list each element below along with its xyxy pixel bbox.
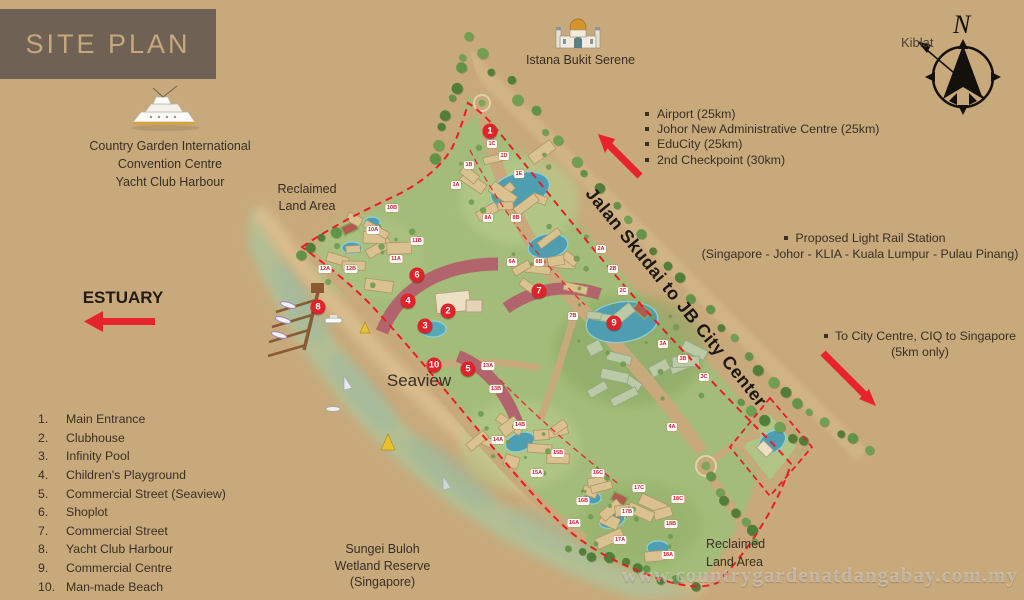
legend-item-label: Clubhouse xyxy=(66,431,125,445)
legend-item-label: Yacht Club Harbour xyxy=(66,542,173,556)
plot-label: 7B xyxy=(568,312,578,320)
bullet-square-icon xyxy=(645,127,649,131)
yacht-icon xyxy=(131,86,199,131)
plot-label: 16C xyxy=(591,469,604,477)
legend-item-number: 3. xyxy=(38,449,66,463)
site-plan-header: SITE PLAN xyxy=(0,9,216,79)
plot-label: 16A xyxy=(567,519,580,527)
plot-label: 1C xyxy=(487,140,497,148)
bullet-square-icon xyxy=(645,112,649,116)
plot-label: 18B xyxy=(664,520,677,528)
plot-label: 12A xyxy=(318,265,331,273)
nearby-item-label: 2nd Checkpoint (30km) xyxy=(657,153,785,167)
compass-north: N xyxy=(952,10,972,39)
site-marker: 2 xyxy=(441,304,456,319)
legend-item-label: Commercial Centre xyxy=(66,561,172,575)
plot-label: 3C xyxy=(699,373,709,381)
site-marker: 4 xyxy=(401,294,416,309)
site-marker: 9 xyxy=(607,316,622,331)
airport-arrow xyxy=(598,134,643,179)
legend-item: 4.Children's Playground xyxy=(38,466,268,485)
plot-label: 10B xyxy=(385,204,398,212)
plot-label: 16B xyxy=(576,497,589,505)
legend-item: 8.Yacht Club Harbour xyxy=(38,540,268,559)
bullet-square-icon xyxy=(784,236,788,240)
plot-label: 14A xyxy=(491,436,504,444)
sungei-buloh-label: Sungei Buloh Wetland Reserve (Singapore) xyxy=(310,541,455,591)
legend-item-number: 9. xyxy=(38,561,66,575)
plot-label: 11A xyxy=(390,255,403,263)
plot-label: 17B xyxy=(620,508,633,516)
plot-label: 13A xyxy=(481,362,494,370)
legend-item-label: Shoplot xyxy=(66,505,108,519)
plot-label: 11B xyxy=(411,237,424,245)
plot-label: 13B xyxy=(489,385,502,393)
nearby-item: Johor New Administrative Centre (25km) xyxy=(645,121,1024,136)
legend-item-number: 5. xyxy=(38,487,66,501)
light-rail-line2: (Singapore - Johor - KLIA - Kuala Lumpur… xyxy=(690,246,1024,262)
legend-item-number: 6. xyxy=(38,505,66,519)
legend-item-number: 4. xyxy=(38,468,66,482)
plot-label: 2B xyxy=(608,265,618,273)
plot-label: 2A xyxy=(596,245,606,253)
legend-item: 10.Man-made Beach xyxy=(38,577,268,596)
plot-label: 1D xyxy=(499,152,509,160)
site-plan-page: N Kiblat SITE PLAN Country Garden Intern… xyxy=(0,0,1024,600)
city-centre-line2: (5km only) xyxy=(815,344,1024,360)
istana-icon xyxy=(556,19,600,48)
nearby-item-label: EduCity (25km) xyxy=(657,137,742,151)
plot-label: 6B xyxy=(534,258,544,266)
watermark: www.countrygardenatdangabay.com.my xyxy=(600,562,1018,590)
legend-item-label: Commercial Street (Seaview) xyxy=(66,487,226,501)
legend-item-number: 7. xyxy=(38,524,66,538)
plot-label: 3B xyxy=(678,355,688,363)
plot-label: 17C xyxy=(632,484,645,492)
plot-label: 1E xyxy=(514,170,524,178)
nearby-list: Airport (25km)Johor New Administrative C… xyxy=(645,106,1024,168)
bullet-square-icon xyxy=(645,158,649,162)
nearby-item: Airport (25km) xyxy=(645,106,1024,121)
plot-label: 6A xyxy=(507,258,517,266)
legend-item-label: Main Entrance xyxy=(66,412,145,426)
plot-label: 4A xyxy=(667,423,677,431)
legend-item: 5.Commercial Street (Seaview) xyxy=(38,484,268,503)
plot-label: 18C xyxy=(671,495,684,503)
reclaimed-land-top-label: Reclaimed Land Area xyxy=(243,181,371,214)
site-marker: 10 xyxy=(427,358,442,373)
plot-label: 1A xyxy=(451,181,461,189)
legend-item-label: Infinity Pool xyxy=(66,449,130,463)
legend-item-number: 2. xyxy=(38,431,66,445)
legend-item: 1.Main Entrance xyxy=(38,410,268,429)
plot-label: 14B xyxy=(513,421,526,429)
nearby-item: EduCity (25km) xyxy=(645,137,1024,152)
plot-label: 8A xyxy=(483,214,493,222)
legend-item: 3.Infinity Pool xyxy=(38,447,268,466)
estuary-arrow xyxy=(84,311,155,332)
plot-label: 12B xyxy=(344,265,357,273)
kiblat-label: Kiblat xyxy=(901,35,934,50)
legend-item: 6.Shoplot xyxy=(38,503,268,522)
plot-label: 18A xyxy=(661,551,674,559)
legend-item: 7.Commercial Street xyxy=(38,522,268,541)
city-centre-line1: To City Centre, CIQ to Singapore xyxy=(815,328,1024,344)
legend-item: 2.Clubhouse xyxy=(38,429,268,448)
bullet-square-icon xyxy=(824,334,828,338)
legend-list: 1.Main Entrance2.Clubhouse3.Infinity Poo… xyxy=(38,410,268,596)
istana-label: Istana Bukit Serene xyxy=(503,52,658,69)
legend-item-number: 1. xyxy=(38,412,66,426)
estuary-label: ESTUARY xyxy=(58,287,188,309)
plot-label: 2C xyxy=(618,287,628,295)
nearby-item-label: Johor New Administrative Centre (25km) xyxy=(657,122,879,136)
light-rail-line1: Proposed Light Rail Station xyxy=(700,230,1024,246)
legend-item-label: Children's Playground xyxy=(66,468,186,482)
site-marker: 1 xyxy=(483,124,498,139)
plot-label: 17A xyxy=(613,536,626,544)
plot-label: 10A xyxy=(366,226,379,234)
legend-item-number: 10. xyxy=(38,580,66,594)
bullet-square-icon xyxy=(645,142,649,146)
legend-item-number: 8. xyxy=(38,542,66,556)
plot-label: 15A xyxy=(530,469,543,477)
legend-item: 9.Commercial Centre xyxy=(38,559,268,578)
site-marker: 8 xyxy=(311,300,326,315)
legend-item-label: Man-made Beach xyxy=(66,580,163,594)
plot-label: 15B xyxy=(551,449,564,457)
nearby-item: 2nd Checkpoint (30km) xyxy=(645,152,1024,167)
compass-rose: N Kiblat xyxy=(901,10,1001,115)
site-marker: 5 xyxy=(461,362,476,377)
legend-item-label: Commercial Street xyxy=(66,524,168,538)
page-title: SITE PLAN xyxy=(25,29,190,60)
site-marker: 6 xyxy=(410,268,425,283)
plot-label: 3A xyxy=(658,340,668,348)
site-marker: 3 xyxy=(418,319,433,334)
plot-label: 8B xyxy=(511,214,521,222)
nearby-item-label: Airport (25km) xyxy=(657,107,736,121)
site-marker: 7 xyxy=(532,284,547,299)
plot-label: 1B xyxy=(464,161,474,169)
